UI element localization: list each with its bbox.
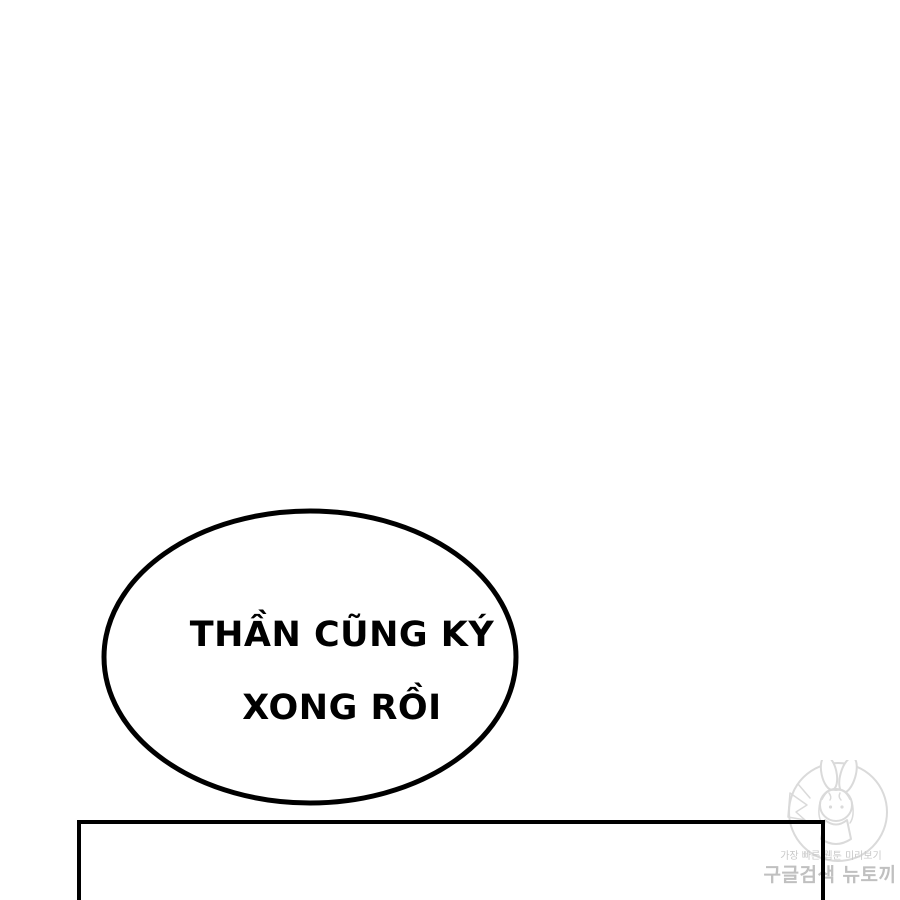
- speech-line-1: THẦN CŨNG KÝ: [152, 599, 532, 672]
- speech-line-2: XONG RỒI: [152, 672, 532, 745]
- speech-bubble-text: THẦN CŨNG KÝ XONG RỒI: [152, 599, 532, 745]
- comic-page: 가장 빠른 웹툰 미리보기 구글검색 뉴토끼 THẦN CŨNG KÝ XONG…: [0, 0, 900, 900]
- speech-bubble: [0, 0, 900, 900]
- panel-border: [77, 820, 825, 900]
